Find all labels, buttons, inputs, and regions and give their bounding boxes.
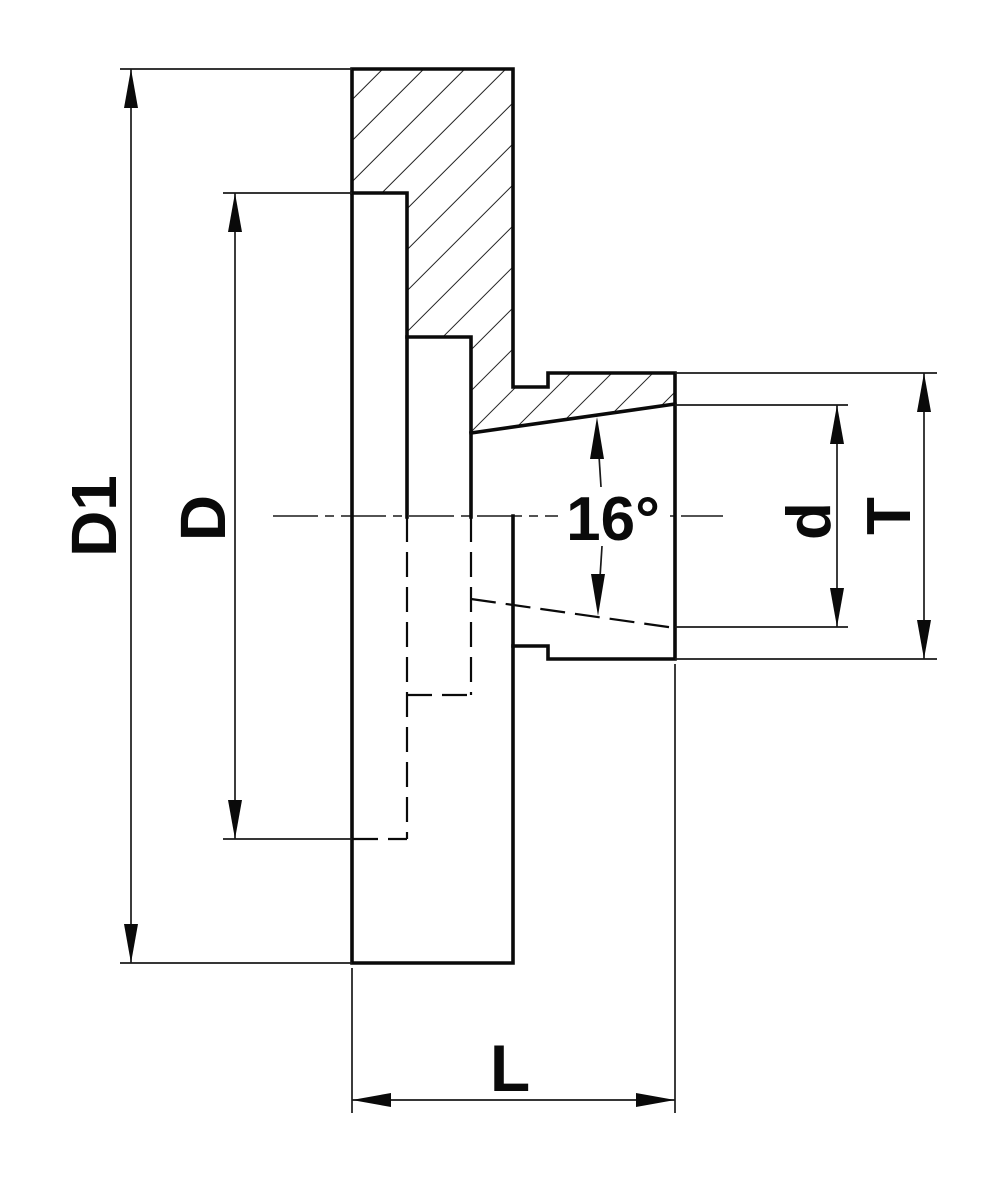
d1-arrow-bottom xyxy=(124,924,138,963)
angle-arrow-bottom xyxy=(591,574,605,616)
recess-step-inner xyxy=(407,337,471,517)
d-arrow-bottom xyxy=(228,800,242,839)
dimension-label-small-d: d xyxy=(775,502,844,540)
dimension-label-d1: D1 xyxy=(58,475,130,557)
dimension-label-d: D xyxy=(167,495,239,541)
angle-arrow-top xyxy=(590,417,604,459)
d-dimension: D xyxy=(167,193,352,839)
hidden-taper-edge xyxy=(471,599,675,628)
t-arrow-bottom xyxy=(917,620,931,659)
small-d-arrow-bottom xyxy=(830,588,844,627)
technical-drawing: D1 D T d xyxy=(0,0,1000,1180)
d1-arrow-top xyxy=(124,69,138,108)
t-arrow-top xyxy=(917,373,931,412)
d-arrow-top xyxy=(228,193,242,232)
dimension-label-angle: 16° xyxy=(566,485,660,554)
recess-step-outer xyxy=(352,193,407,517)
l-arrow-right xyxy=(636,1093,675,1107)
drawing-canvas: D1 D T d xyxy=(0,0,1000,1180)
small-d-arrow-top xyxy=(830,405,844,444)
dimension-label-l: L xyxy=(490,1031,530,1105)
dimension-label-t: T xyxy=(855,497,924,535)
l-arrow-left xyxy=(352,1093,391,1107)
taper-angle-dimension: 16° xyxy=(558,417,670,616)
